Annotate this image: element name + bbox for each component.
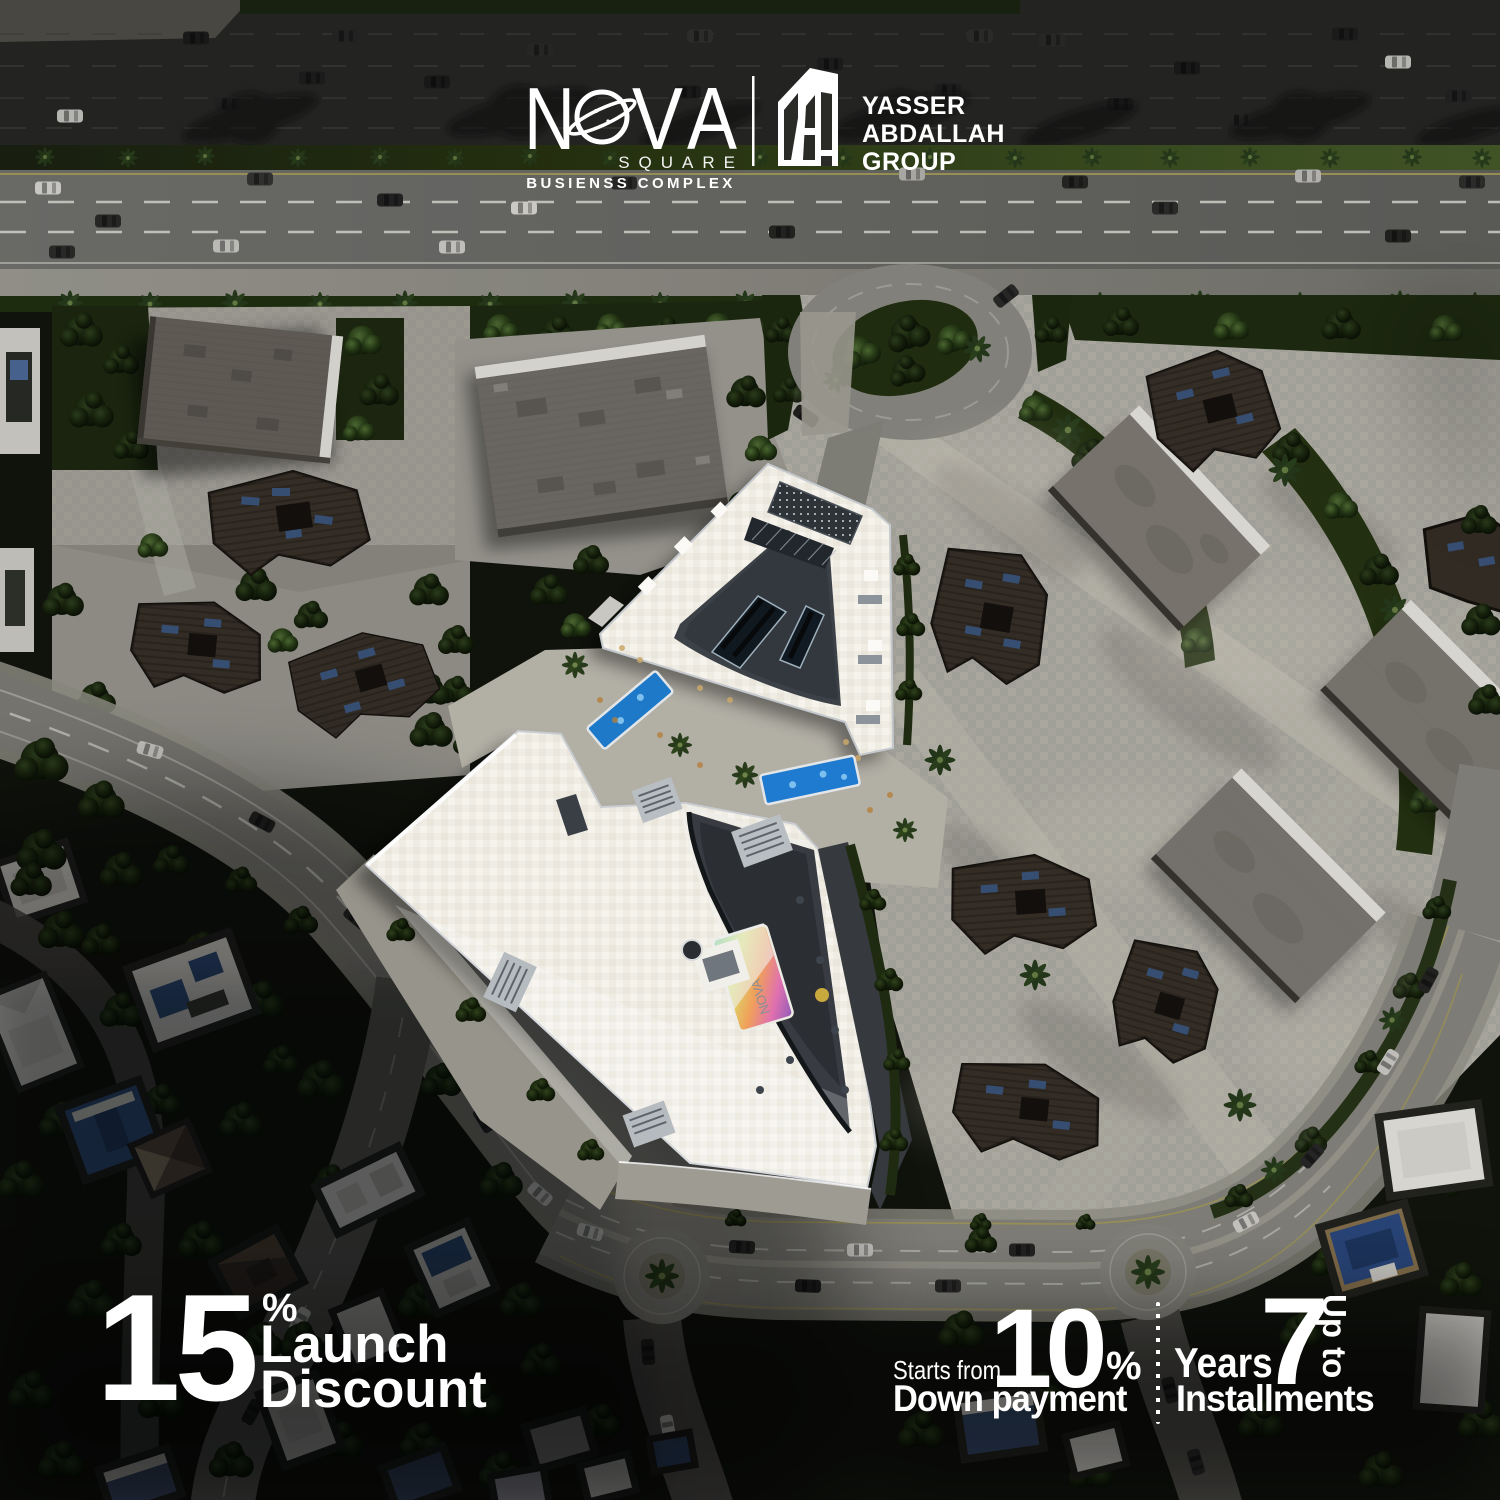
svg-text:SQUARE: SQUARE	[618, 153, 744, 172]
svg-text:BUSIENSS COMPLEX: BUSIENSS COMPLEX	[526, 175, 735, 192]
svg-text:GROUP: GROUP	[862, 148, 956, 176]
svg-text:YASSER: YASSER	[862, 92, 966, 120]
svg-text:N: N	[524, 69, 575, 168]
svg-text:ABDALLAH: ABDALLAH	[862, 120, 1005, 148]
